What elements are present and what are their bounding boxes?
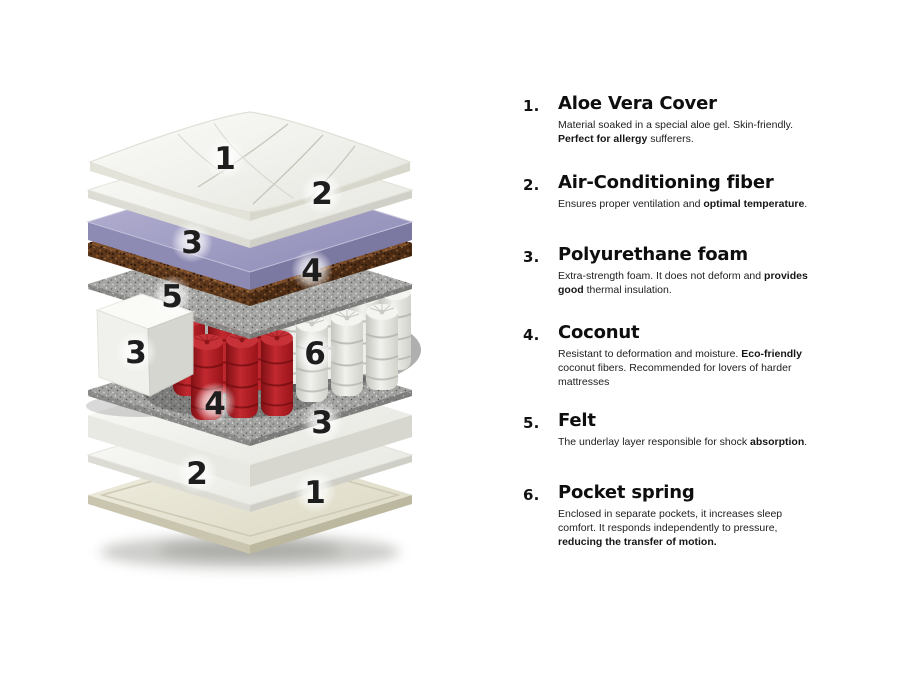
legend-item-felt: 5. Felt The underlay layer responsible f… (523, 411, 822, 450)
mattress-layers-illustration: 1 2 3 4 5 (38, 62, 478, 602)
spring-red (261, 330, 293, 416)
mattress-diagram: 1 2 3 4 5 (38, 62, 478, 602)
mattress-infographic: 1 2 3 4 5 (0, 0, 900, 675)
svg-text:4: 4 (204, 386, 226, 422)
legend-item-aloe-vera-cover: 1. Aloe Vera Cover Material soaked in a … (523, 94, 822, 147)
layer-label-4-lower: 4 (194, 382, 236, 424)
svg-text:4: 4 (301, 253, 323, 289)
legend-title: Coconut (558, 323, 822, 343)
svg-text:2: 2 (311, 176, 333, 212)
legend-number: 6. (523, 483, 558, 504)
svg-text:6: 6 (304, 336, 326, 372)
legend-number: 3. (523, 245, 558, 266)
svg-text:2: 2 (186, 456, 208, 492)
svg-text:3: 3 (181, 225, 203, 261)
legend-description: Material soaked in a special aloe gel. S… (558, 119, 822, 147)
legend-title: Polyurethane foam (558, 245, 822, 265)
layer-label-1: 1 (204, 137, 246, 179)
legend-title: Aloe Vera Cover (558, 94, 822, 114)
legend-description: The underlay layer responsible for shock… (558, 436, 822, 450)
legend-number: 2. (523, 173, 558, 194)
layer-label-3-block: 3 (115, 331, 157, 373)
legend-item-air-conditioning-fiber: 2. Air-Conditioning fiber Ensures proper… (523, 173, 822, 212)
layer-label-1-lower: 1 (294, 471, 336, 513)
legend-number: 5. (523, 411, 558, 432)
svg-text:5: 5 (161, 279, 183, 315)
legend-number: 1. (523, 94, 558, 115)
legend-description: Extra-strength foam. It does not deform … (558, 270, 822, 298)
legend-number: 4. (523, 323, 558, 344)
legend-item-coconut: 4. Coconut Resistant to deformation and … (523, 323, 822, 390)
svg-text:3: 3 (311, 405, 333, 441)
spring-white (366, 304, 398, 390)
legend-item-polyurethane-foam: 3. Polyurethane foam Extra-strength foam… (523, 245, 822, 298)
layer-label-2-lower: 2 (176, 452, 218, 494)
svg-text:1: 1 (214, 141, 236, 177)
legend-title: Air-Conditioning fiber (558, 173, 822, 193)
legend-description: Enclosed in separate pockets, it increas… (558, 508, 822, 550)
legend-description: Resistant to deformation and moisture. E… (558, 348, 822, 390)
svg-text:1: 1 (304, 475, 326, 511)
legend-item-pocket-spring: 6. Pocket spring Enclosed in separate po… (523, 483, 822, 550)
layer-label-5: 5 (151, 275, 193, 317)
layer-label-6: 6 (294, 332, 336, 374)
layer-label-2: 2 (301, 172, 343, 214)
svg-text:3: 3 (125, 335, 147, 371)
legend-description: Ensures proper ventilation and optimal t… (558, 198, 822, 212)
layer-label-3: 3 (171, 221, 213, 263)
layer-label-3-lower: 3 (301, 401, 343, 443)
legend-title: Pocket spring (558, 483, 822, 503)
legend-title: Felt (558, 411, 822, 431)
layer-label-4: 4 (291, 249, 333, 291)
